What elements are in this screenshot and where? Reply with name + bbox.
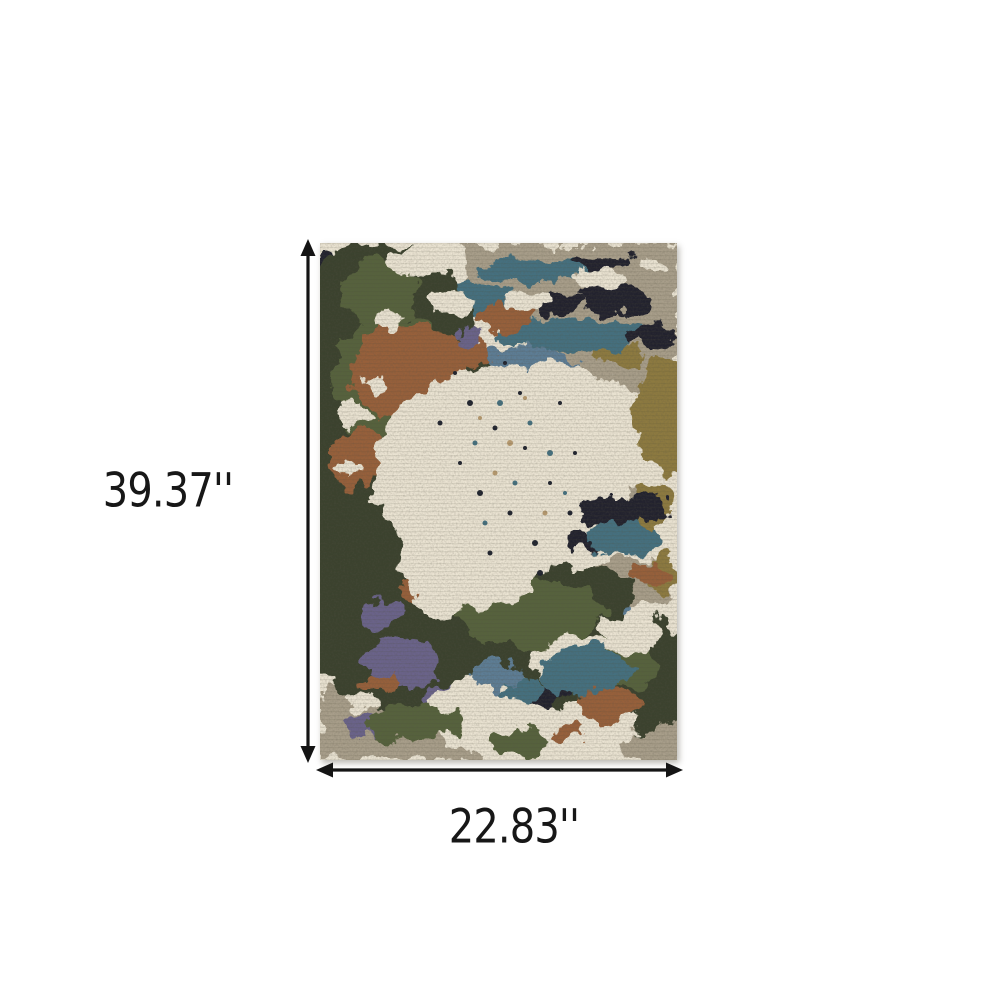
width-dimension-label: 22.83'' [449, 800, 579, 855]
height-dimension-arrow [301, 239, 316, 763]
product-dimension-diagram: 39.37'' 22.83'' [0, 0, 1000, 1000]
arrowhead-down-icon [301, 746, 316, 763]
rug-image [320, 243, 677, 760]
width-dimension-arrow [316, 763, 683, 778]
arrowhead-up-icon [301, 239, 316, 256]
rug-artwork [320, 243, 677, 760]
arrowhead-left-icon [316, 763, 333, 778]
height-dimension-label: 39.37'' [103, 464, 233, 519]
rug-grain-texture [320, 243, 677, 760]
arrowhead-right-icon [666, 763, 683, 778]
